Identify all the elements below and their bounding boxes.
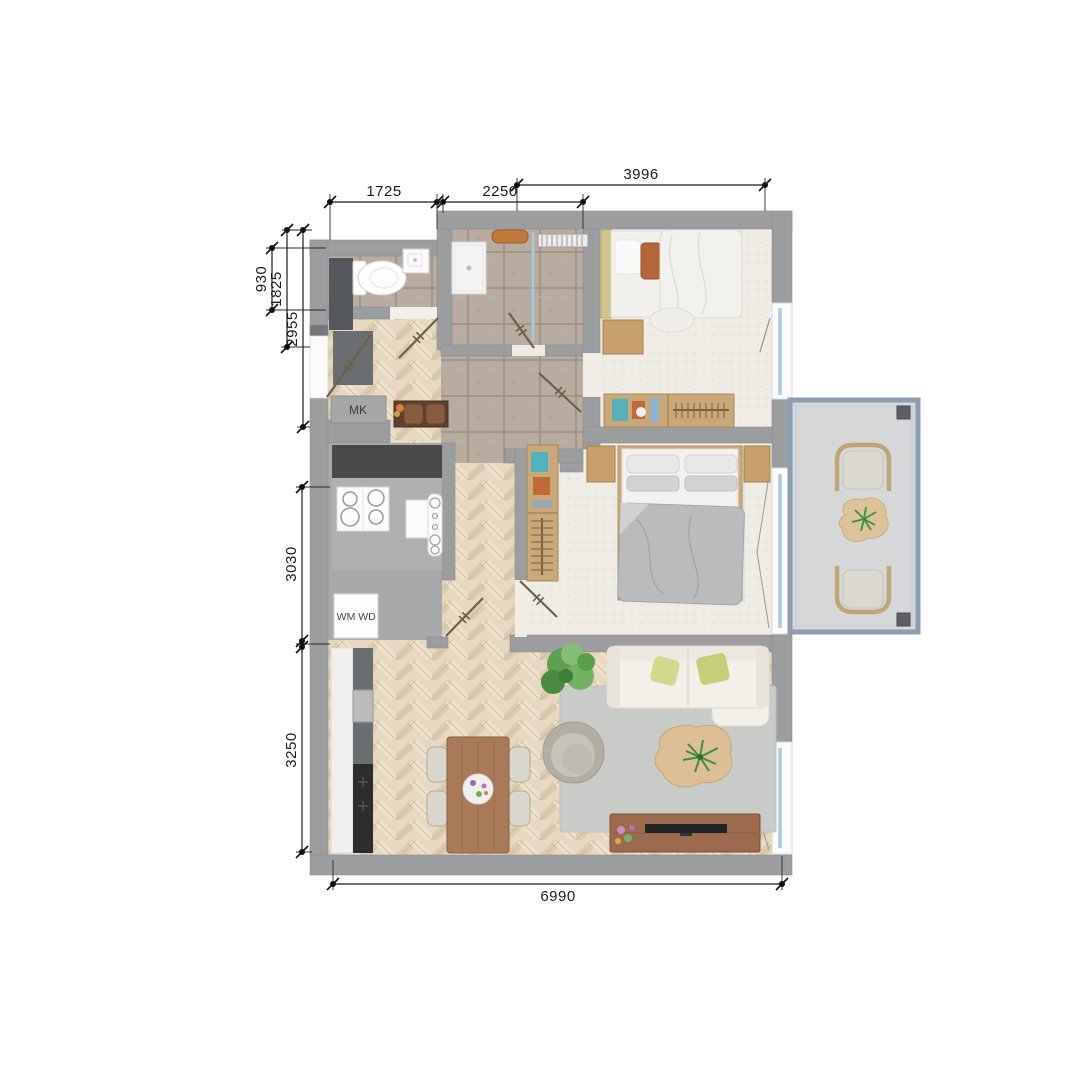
armchair [543,722,604,783]
wd-label: WD [358,611,376,623]
kitchen-tall-cabinets [332,445,442,478]
wc-vanity [329,258,353,330]
bathroom-door-opening [512,345,545,356]
bedroom1-bed [617,446,745,605]
wc-door-opening [390,307,437,319]
tall-cooktop [353,764,373,853]
entrance-door-opening [310,336,328,398]
shower-tray [452,242,486,294]
floorplan-canvas: WM WD MK [0,0,1092,1092]
wall-bottom-exterior [310,855,792,875]
oven [353,690,373,722]
cooktop [337,487,389,531]
bedroom1-nightstand-left [587,446,615,482]
balcony-chair-bottom [837,566,889,612]
dim-left-3: 2955 [284,311,301,346]
dim-left-4: 3030 [283,546,300,581]
wall-tab [560,463,583,472]
bedroom1-nightstand-right [744,446,770,482]
wall-kitchen-right [442,443,455,580]
hall-console [394,401,448,427]
wall-bedroom2-left-upper [583,229,600,353]
meter-closet: MK [331,396,386,423]
duvet [617,503,744,605]
balcony-corner-post-top [897,406,910,419]
dim-top-1: 1725 [366,183,401,200]
bathroom-sink [492,230,528,243]
dining-chair [427,791,448,826]
wall-bathroom-inner-right [545,345,583,356]
wall-left-lower [310,398,328,855]
balcony-corner-post-bottom [897,613,910,626]
wall-left-upper [310,240,328,336]
dim-left-5: 3250 [283,732,300,767]
dim-top-3: 3996 [623,166,658,183]
bedroom1-wardrobe [527,445,558,581]
wall-bedroom1-left [515,449,527,580]
wall-top-exterior [437,211,792,229]
mk-label: MK [349,403,367,417]
dining-chair [509,791,530,826]
living-cabinet-white [331,648,353,853]
wall-right-top [772,211,792,303]
dining-chair [427,747,448,782]
washer-dryer: WM WD [334,594,378,638]
coffee-table [655,725,732,787]
radiator [538,234,588,247]
balcony-table [839,498,888,542]
wall-living-stub [427,637,448,648]
tv-console [610,814,760,852]
toilet [353,261,406,295]
tv [645,824,727,833]
table-plate [463,774,493,804]
wc-sink [403,249,429,273]
wall-left-notch [310,325,328,336]
dim-left-2: 1825 [268,271,285,306]
bedroom2-door-opening [583,353,600,397]
bedroom2-wardrobe [604,394,734,427]
bedroom2-nightstand [603,320,643,354]
bedroom2-bed [601,230,742,332]
dining-chair [509,747,530,782]
wall-bathroom-left [437,229,452,350]
wm-label: WM [337,611,356,623]
wall-bathroom-inner-left [441,345,512,356]
dim-bottom-1: 6990 [540,888,575,905]
dim-top-2: 2250 [482,183,517,200]
bedroom1-door-opening [515,580,527,637]
wall-bedrooms-divider [583,427,772,443]
floorplan-drawing: WM WD MK [0,0,1092,1092]
